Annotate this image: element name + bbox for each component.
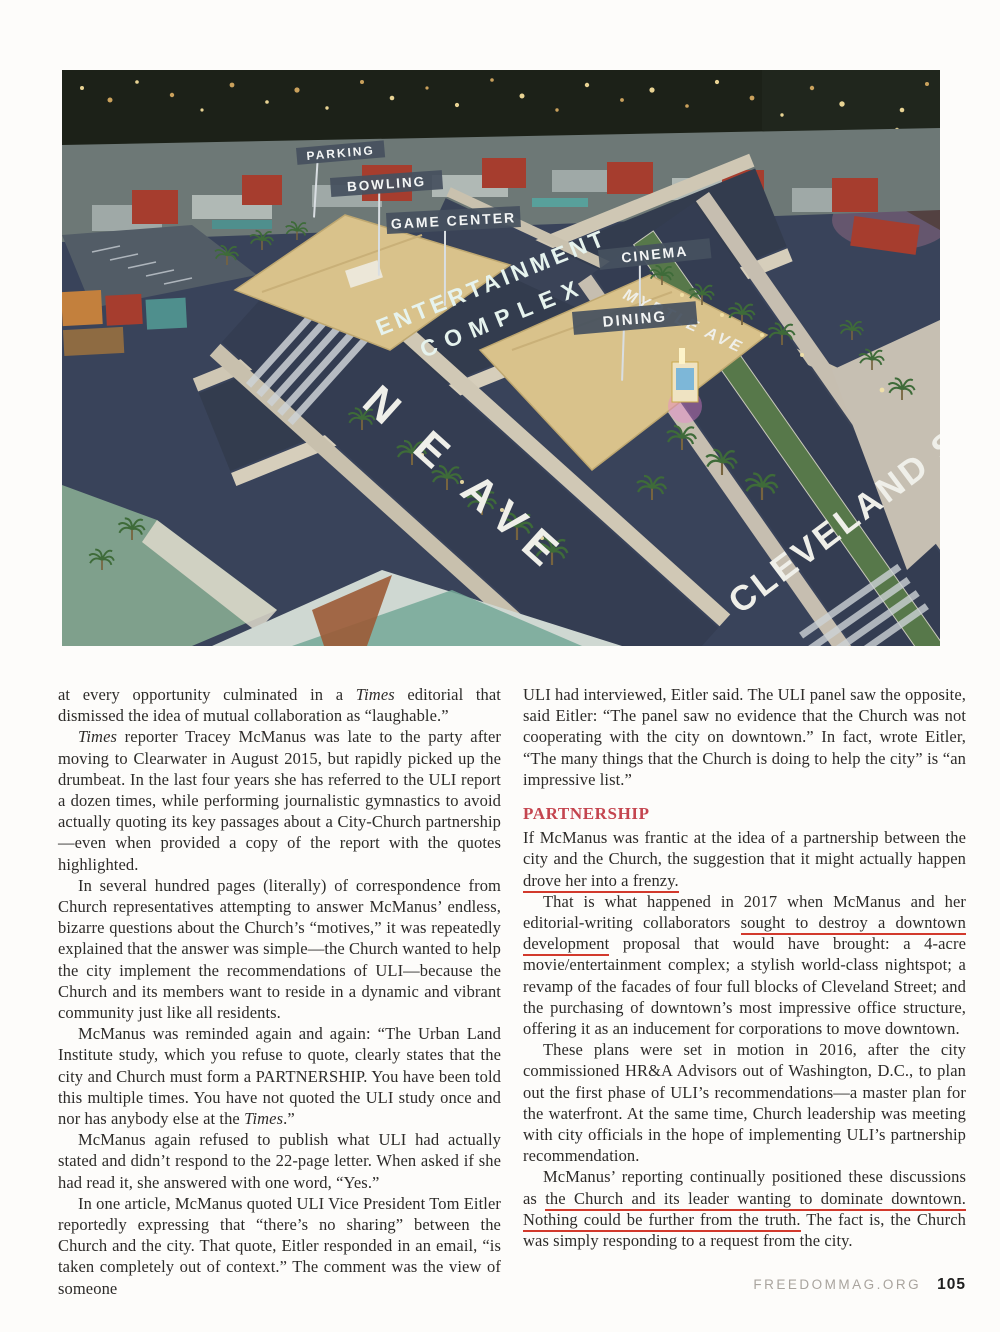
paragraph: ULI had interviewed, Eitler said. The UL… — [523, 684, 966, 790]
text-segment: .” — [283, 1109, 295, 1128]
paragraph: These plans were set in motion in 2016, … — [523, 1039, 966, 1166]
page-footer: FREEDOMMAG.ORG 105 — [753, 1276, 966, 1294]
times-italic: Times — [356, 685, 395, 704]
times-italic: Times — [78, 727, 117, 746]
paragraph: In one article, McManus quoted ULI Vice … — [58, 1193, 501, 1299]
section-heading-partnership: PARTNERSHIP — [523, 803, 966, 824]
paragraph: In several hundred pages (literally) of … — [58, 875, 501, 1023]
article-body: at every opportunity culminated in a Tim… — [58, 684, 966, 1299]
rendering-scene: N E AVE CLEVELAND ST MYRTLE AVE ENTERTAI… — [62, 70, 940, 646]
text-segment: at every opportunity culminated in a — [58, 685, 356, 704]
paragraph: If McManus was frantic at the idea of a … — [523, 827, 966, 891]
paragraph: at every opportunity culminated in a Tim… — [58, 684, 501, 726]
paragraph: McManus’ reporting continually positione… — [523, 1166, 966, 1251]
text-segment: In several hundred pages (literally) of … — [58, 876, 501, 1022]
text-segment: reporter Tracey McManus was late to the … — [58, 727, 501, 873]
paragraph: That is what happened in 2017 when McMan… — [523, 891, 966, 1039]
red-underline-phrase: drove her into a frenzy. — [523, 871, 679, 893]
development-rendering: N E AVE CLEVELAND ST MYRTLE AVE ENTERTAI… — [62, 70, 940, 646]
footer-page-number: 105 — [937, 1276, 966, 1294]
footer-site-url: FREEDOMMAG.ORG — [753, 1277, 921, 1292]
right-column: ULI had interviewed, Eitler said. The UL… — [523, 684, 966, 1299]
text-segment: These plans were set in motion in 2016, … — [523, 1040, 966, 1165]
magazine-page: N E AVE CLEVELAND ST MYRTLE AVE ENTERTAI… — [0, 0, 1000, 1332]
text-segment: If McManus was frantic at the idea of a … — [523, 828, 966, 868]
paragraph: Times reporter Tracey McManus was late t… — [58, 726, 501, 874]
paragraph: McManus was reminded again and again: “T… — [58, 1023, 501, 1129]
times-italic: Times — [244, 1109, 283, 1128]
text-segment: McManus again refused to publish what UL… — [58, 1130, 501, 1191]
left-column: at every opportunity culminated in a Tim… — [58, 684, 501, 1299]
text-segment: In one article, McManus quoted ULI Vice … — [58, 1194, 501, 1298]
paragraph: McManus again refused to publish what UL… — [58, 1129, 501, 1193]
text-segment: ULI had interviewed, Eitler said. The UL… — [523, 685, 966, 789]
